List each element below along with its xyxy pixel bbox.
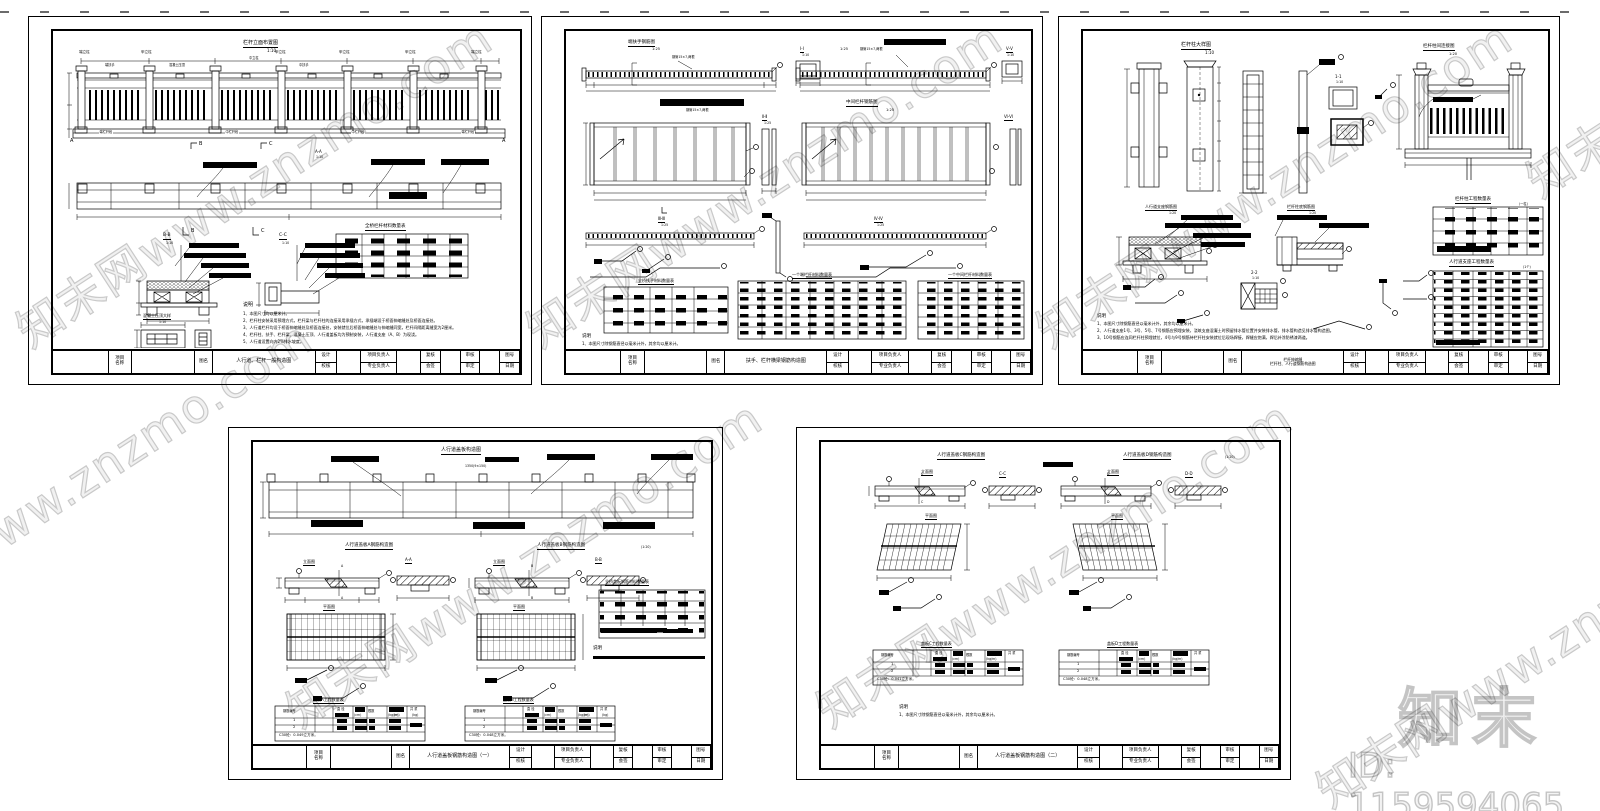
s2-tbl3-title: 一个中间栏杆材料数量表: [948, 273, 992, 279]
mid-handrail-beam: [796, 39, 997, 91]
qtA-h-dia: 直 径: [337, 708, 344, 711]
qtC-h-cnt: 根数: [966, 654, 972, 657]
s4-scale: (1:20): [641, 546, 651, 549]
sheet-5-frame: 人行道盖板C钢筋构造图 立面图 C-C C C 平面图 盖板C工程数量表 人行道…: [819, 440, 1281, 770]
s2-note: 1、本图尺寸除钢筋直径以毫米计外，其余均以厘米计。: [582, 342, 681, 346]
s4-mark-A: A: [341, 565, 343, 568]
s4-notes-title: 说明: [593, 647, 602, 652]
s4-plan-label: 平面图: [513, 605, 525, 611]
qtC-h-tl: 共 长: [989, 652, 996, 655]
s5-plan-label: 平面图: [925, 514, 937, 520]
walkway-bearing-detail: [1116, 215, 1251, 282]
s1-note: 3、人行道栏杆均设于桥面伸缩缝处及桥面连接处，安装就位后桥面伸缩缝处与伸缩缝同宽…: [243, 326, 456, 330]
s1-seg-end-label: 端栏杆段: [461, 131, 475, 134]
qtA-h-no: 钢筋编号: [283, 710, 296, 713]
qtA-h-len: (cm): [354, 714, 361, 717]
section-1-1: [1329, 83, 1396, 146]
sheet-2-frame: 端扶手钢筋图 1:25 钢管15×7,两根 钢管15×7,两根 1:25 Ⅰ-Ⅰ…: [564, 29, 1033, 375]
tb-name-label: 图名: [195, 351, 213, 373]
qtB-h-len: (cm): [544, 714, 551, 717]
s1-mark-a: A: [70, 139, 73, 144]
s3-sec2-scale: 1:10: [1252, 277, 1259, 280]
qtA-r2: 2: [293, 726, 295, 730]
sheet-2: 端扶手钢筋图 1:25 钢管15×7,两根 钢管15×7,两根 1:25 Ⅰ-Ⅰ…: [541, 16, 1043, 385]
sheet1-drawing: [53, 31, 517, 348]
bearing-qty-table: [1433, 271, 1543, 347]
plate-A-plan: [287, 614, 396, 701]
tb-drawing-title: 人行道、栏杆一般构造图: [213, 351, 316, 373]
s1-cap-detail-title: 混凝土压顶大样: [143, 314, 171, 320]
tb-drawing-title: 栏杆伸缩缝 栏杆柱、人行道钢筋构造图: [1242, 351, 1344, 373]
s2-t2-sub: 钢管15×7,两根: [860, 48, 883, 51]
qtB-footer: C30砼：0.048立方米。: [469, 734, 508, 738]
s4-secB-label: B-B: [595, 558, 602, 564]
s5-plan-label: 平面图: [1111, 514, 1123, 520]
zhimo-logo: 知末: [1398, 668, 1546, 760]
plate-C-plan: [877, 524, 970, 611]
s5-mark-D: D: [1107, 501, 1109, 504]
s4-elev-label: 立面图: [493, 560, 505, 566]
section-D-D: [1169, 486, 1228, 509]
s1-a-post-label: 甲立柱: [275, 51, 286, 55]
s2-tbl1-title: 全桥扶手材料数量表: [638, 279, 674, 285]
qtD-r1: 1: [1077, 663, 1079, 667]
title-block: 项目名称 图名 人行道盖板钢筋构造图（二） 设计校核 项目负责人专业负责人 复核…: [821, 744, 1279, 768]
plate-B-elevation: [469, 569, 582, 604]
plate-C-elevation: [869, 462, 1073, 509]
qtB-h-no: 钢筋编号: [473, 710, 486, 713]
qtC-h-len: (cm): [952, 658, 959, 661]
table-1: [604, 287, 728, 333]
s1-title: 栏杆立面布置图: [243, 41, 278, 48]
end-handrail-beam: [582, 61, 783, 91]
sheet-5: 人行道盖板C钢筋构造图 立面图 C-C C C 平面图 盖板C工程数量表 人行道…: [796, 427, 1291, 780]
s2-sec2: Ⅴ-Ⅴ: [1006, 47, 1013, 53]
s1-end-post-label: 端立柱: [79, 51, 90, 55]
tb-drawing-title: 人行道盖板钢筋构造图（二）: [978, 746, 1078, 768]
qtC-r1: 1: [891, 663, 893, 667]
s2-ladder-sub: 钢管15×7,两根: [686, 109, 709, 112]
plate-D-elevation: [1061, 477, 1162, 510]
s2-sec3: Ⅱ-Ⅱ: [762, 115, 767, 121]
s3-t2: 栏杆柱间连接图: [1423, 45, 1455, 51]
qtA-r1: 1: [293, 719, 295, 723]
s1-table-title: 全桥栏杆材料数量表: [365, 225, 406, 231]
s5-tblD-title: 盖板D工程数量表: [1107, 642, 1138, 648]
s1-mark-c: C: [261, 229, 265, 234]
s4-gB-title: 人行道盖板B钢筋构造图: [537, 544, 585, 550]
qtB-h-dia: 直 径: [527, 708, 534, 711]
s1-cap-label: 混凝土压顶: [169, 64, 185, 67]
title-block: 项目名称 图名 人行道、栏杆一般构造图 设计校核 项目负责人专业负责人 复核会签…: [53, 349, 520, 373]
qtC-h-uw: (kg/m): [986, 658, 997, 661]
qtB-r2: 2: [483, 726, 485, 730]
s1-mark-c: C: [269, 142, 273, 147]
s3-note: 2、人行道支座1号、3号、5号、7号钢筋应预埋安装，浇筑支座混凝土时预留排水管位…: [1097, 329, 1334, 333]
qtB-h-tlu: (m): [584, 714, 590, 717]
s2-sec1: Ⅰ-Ⅰ: [800, 47, 804, 53]
table-2: [738, 281, 906, 339]
s2-t1: 端扶手钢筋图: [628, 41, 655, 47]
s2-sec3-scale: 1:25: [764, 122, 771, 125]
s1-sec-cc-label: C-C: [279, 234, 287, 240]
s1-mark-a: A: [502, 139, 505, 144]
s3-d1: 人行道支座钢筋图: [1145, 205, 1177, 211]
s5-mark-C: C: [921, 501, 923, 504]
end-railing-ladder: [583, 99, 759, 213]
s2-sec1-scale: 1:10: [802, 54, 809, 57]
s3-sec1-scale: 1:10: [1336, 81, 1343, 84]
s3-t1: 栏杆柱大样图: [1181, 43, 1211, 50]
qtD-h-cnt: 根数: [1152, 654, 1158, 657]
s1-note: 2、栏杆柱安装采用预埋方式，栏杆梁与栏杆柱的连接采用承插方式，承插端设于桥面伸缩…: [243, 319, 438, 323]
qtA-h-tlu: (m): [394, 714, 400, 717]
qtA-h-tl: 共 长: [391, 708, 398, 711]
section-VI-VI: [1010, 129, 1021, 185]
s2-t2-scale: 1:25: [840, 48, 848, 52]
section-C-C: [983, 486, 1042, 509]
post-base-detail: [1275, 215, 1369, 271]
s1-end-rail-label: 端扶手: [105, 64, 115, 67]
s3-tbl2-sub: (1个): [1523, 266, 1531, 269]
s2-sec6: Ⅳ-Ⅳ: [874, 217, 883, 223]
s2-sec2-scale: 1:10: [1007, 54, 1014, 57]
s4-plan-label: 平面图: [323, 605, 335, 611]
s5-gC-title: 人行道盖板C钢筋构造图: [937, 454, 985, 460]
qtD-r2: 2: [1077, 670, 1079, 674]
s5-mark-C: C: [921, 473, 923, 476]
image-id-text: ID: 1159594065: [1348, 746, 1600, 811]
post-details: [1124, 55, 1344, 194]
post-connection-elevation: [1396, 63, 1531, 180]
s2-sec6-scale: 1:25: [877, 224, 884, 227]
s1-sec-aa-scale: 1:10: [316, 156, 323, 159]
s5-mark-D: D: [1107, 473, 1109, 476]
s3-t2-scale: 1:20: [1449, 53, 1457, 57]
qtC-footer: C30砼：0.041立方米。: [877, 678, 916, 682]
qtD-h-no: 钢筋编号: [1067, 654, 1080, 657]
s5-notes-title: 说明: [899, 706, 908, 711]
tb-drawing-title: 人行道盖板钢筋构造图（一）: [410, 746, 510, 768]
s5-note: 1、本图尺寸除钢筋直径以毫米计外，其余均以厘米计。: [899, 713, 998, 717]
s2-t1-sub: 钢管15×7,两根: [672, 56, 695, 59]
s1-cap-detail-scale: 1:10: [159, 321, 166, 324]
s1-mid-rail-label: 中扶手: [299, 64, 309, 67]
sheet-3: 栏杆柱大样图 1:10 1-1 1:10 栏杆柱间连接图 1:20 人行道支座钢…: [1058, 16, 1560, 385]
s4-mark-A: A: [341, 597, 343, 600]
qtD-h-uw: (kg/m): [1172, 658, 1183, 661]
qtB-h-tw: 共 重: [600, 708, 607, 711]
s1-seg-mid-label: 中栏杆段: [351, 131, 365, 134]
s2-sec5: Ⅲ-Ⅲ: [658, 217, 665, 223]
plate-A-elevation: [276, 569, 392, 604]
s1-end-post-label: 端立柱: [471, 51, 482, 55]
railing-plan: [69, 183, 501, 235]
s1-a-post-label: 甲立柱: [339, 51, 350, 55]
top-dashed-line: [0, 11, 1600, 13]
s4-secA-label: A-A: [405, 558, 412, 564]
s1-notes-title: 说明: [243, 303, 253, 308]
sheet-1-frame: 栏杆立面布置图 1:10 端立柱 甲立柱 甲立柱 甲立柱 甲立柱 端立柱 端扶手…: [51, 29, 522, 375]
qtC-h-dia: 直 径: [935, 652, 942, 655]
s3-note: 1、本图尺寸除钢筋直径以毫米计外，其余均以厘米计。: [1097, 322, 1196, 326]
qtD-h-tl: 共 长: [1175, 652, 1182, 655]
cap-detail: [134, 322, 211, 348]
s3-d2: 栏杆柱底钢筋图: [1287, 205, 1315, 211]
sheet-1: 栏杆立面布置图 1:10 端立柱 甲立柱 甲立柱 甲立柱 甲立柱 端立柱 端扶手…: [28, 16, 532, 385]
s5-tblC-title: 盖板C工程数量表: [921, 642, 952, 648]
s3-notes-title: 说明: [1097, 315, 1106, 320]
qtB-h-twu: (kg): [602, 714, 608, 717]
s4-gA-title: 人行道盖板A钢筋构造图: [345, 544, 393, 550]
s4-mark-B: B: [531, 597, 533, 600]
s2-sec5-scale: 1:25: [661, 224, 668, 227]
railing-elevation: [67, 58, 505, 197]
s1-sec-bb-scale: 1:10: [166, 242, 173, 245]
s5-scale: (1:20): [1225, 456, 1235, 459]
qtD-footer: C30砼：0.048立方米。: [1063, 678, 1102, 682]
mid-railing-ladder: [802, 123, 999, 200]
material-table: [336, 234, 468, 278]
s3-note: 3、10号钢筋应连同栏杆柱预埋就位，4号与9号钢筋待栏杆柱安装就位后现场焊接，焊…: [1097, 336, 1310, 340]
sheet5-drawing: [821, 442, 1276, 743]
s2-tbl2-title: 一个端栏杆材料数量表: [792, 273, 832, 279]
qtD-h-len: (cm): [1138, 658, 1145, 661]
qtD-h-dia: 直 径: [1121, 652, 1128, 655]
qtB-h-cnt: 根数: [558, 710, 564, 713]
sheet2-drawing: [566, 31, 1030, 348]
section-II-II: [762, 129, 776, 194]
s1-a-post-label: 甲立柱: [405, 51, 416, 55]
s2-t4-scale: 1:25: [886, 109, 894, 113]
s3-d2-scale: 1:20: [1309, 212, 1316, 215]
section-bb: [136, 243, 251, 324]
qtD-h-tw: 共 重: [1194, 652, 1201, 655]
sheet-4-frame: 人行道盖板构造图 1350(9×150) 人行道盖板A钢筋构造图 立面图 A-A…: [251, 440, 713, 770]
qtA-h-cnt: 根数: [368, 710, 374, 713]
table-3: [918, 281, 1024, 339]
plate-D-plan: [1069, 524, 1168, 611]
watermark-text: 知末网www.znzmo.com: [1302, 463, 1600, 811]
s1-sec-cc-scale: 1:10: [282, 242, 289, 245]
sheet3-drawing: [1083, 31, 1547, 348]
qtC-r2: 2: [891, 670, 893, 674]
qtC-h-no: 钢筋编号: [881, 654, 894, 657]
s3-tbl1-title: 栏杆柱工程数量表: [1455, 198, 1491, 204]
s4-mark-B: B: [531, 565, 533, 568]
s2-t1-scale: 1:25: [652, 48, 660, 52]
sheet-3-frame: 栏杆柱大样图 1:10 1-1 1:10 栏杆柱间连接图 1:20 人行道支座钢…: [1081, 29, 1550, 375]
s3-d1-scale: 1:20: [1169, 212, 1176, 215]
s2-notes-title: 说明: [582, 335, 591, 340]
s3-t1-scale: 1:10: [1205, 51, 1214, 55]
s5-secC-label: C-C: [999, 472, 1006, 478]
s1-seg-end-label: 端栏杆段: [99, 131, 113, 134]
s1-note: 5、人行道设置向内2%排水坡度。: [243, 340, 304, 344]
section-A-A: [391, 576, 456, 601]
s1-seg-mid-label: 中栏杆段: [225, 131, 239, 134]
s4-strip-dim: 1350(9×150): [465, 465, 486, 468]
qtC-h-tw: 共 重: [1008, 652, 1015, 655]
s4-tblB-title: 盖板B工程数量表: [503, 698, 534, 704]
s1-sec-bb-label: B-B: [163, 234, 171, 240]
page-canvas: 栏杆立面布置图 1:10 端立柱 甲立柱 甲立柱 甲立柱 甲立柱 端立柱 端扶手…: [0, 0, 1600, 811]
s1-note: 1、本图尺寸均以厘米计。: [243, 312, 290, 316]
s2-t4: 中间栏杆钢筋图: [846, 101, 878, 107]
s3-sec1: 1-1: [1335, 75, 1342, 79]
section-V-V: [1002, 61, 1022, 84]
s5-secD-label: D-D: [1185, 472, 1193, 478]
qtA-h-tw: 共 重: [410, 708, 417, 711]
qtA-h-twu: (kg): [412, 714, 418, 717]
s3-sec2: 2-2: [1251, 271, 1258, 275]
s3-tbl1-sub: (一柱): [1519, 203, 1528, 206]
s4-tblA-title: 盖板A工程数量表: [313, 698, 344, 704]
bridge-plate-table: [593, 590, 705, 659]
s1-mark-b: B: [199, 142, 202, 147]
s3-tbl2-title: 人行道支座工程数量表: [1449, 261, 1494, 267]
s1-mark-b: B: [191, 229, 194, 234]
title-block: 项目名称 图名 扶手、栏杆横梁钢筋构造图 设计校核 项目负责人专业负责人 复核会…: [566, 349, 1031, 373]
qtB-r1: 1: [483, 719, 485, 723]
plate-B-plan: [477, 614, 583, 701]
s2-sec4: Ⅵ-Ⅵ: [1004, 115, 1013, 121]
s1-sec-aa-label: A-A: [315, 150, 322, 154]
s5-gD-title: 人行道盖板D钢筋构造图: [1123, 454, 1171, 460]
tb-drawing-title: 扶手、栏杆横梁钢筋构造图: [725, 351, 827, 373]
sheet-4: 人行道盖板构造图 1350(9×150) 人行道盖板A钢筋构造图 立面图 A-A…: [228, 427, 723, 780]
s1-a-post-label: 甲立柱: [141, 51, 152, 55]
s1-mid-post-label: 中立柱: [249, 57, 259, 60]
s1-note: 4、栏杆柱、扶手、栏杆梁、混凝土压顶、人行道盖板均为预制安装，人行道支座（A、B…: [243, 333, 419, 337]
qtB-h-tl: 共 长: [581, 708, 588, 711]
s4-strip-title: 人行道盖板构造图: [441, 448, 481, 455]
title-block: 项目名称 图名 栏杆伸缩缝 栏杆柱、人行道钢筋构造图 设计校核 项目负责人专业负…: [1083, 349, 1548, 373]
section-2-2: [1241, 279, 1288, 310]
qtA-footer: C30砼：0.049立方米。: [279, 734, 318, 738]
title-block: 项目名称 图名 人行道盖板钢筋构造图（一） 设计校核 项目负责人专业负责人 复核…: [253, 744, 711, 768]
s4-elev-label: 立面图: [303, 560, 315, 566]
post-qty-table: [1433, 207, 1543, 255]
s4-right-table-title: 全桥盖板钢筋材料数量表: [605, 580, 649, 586]
